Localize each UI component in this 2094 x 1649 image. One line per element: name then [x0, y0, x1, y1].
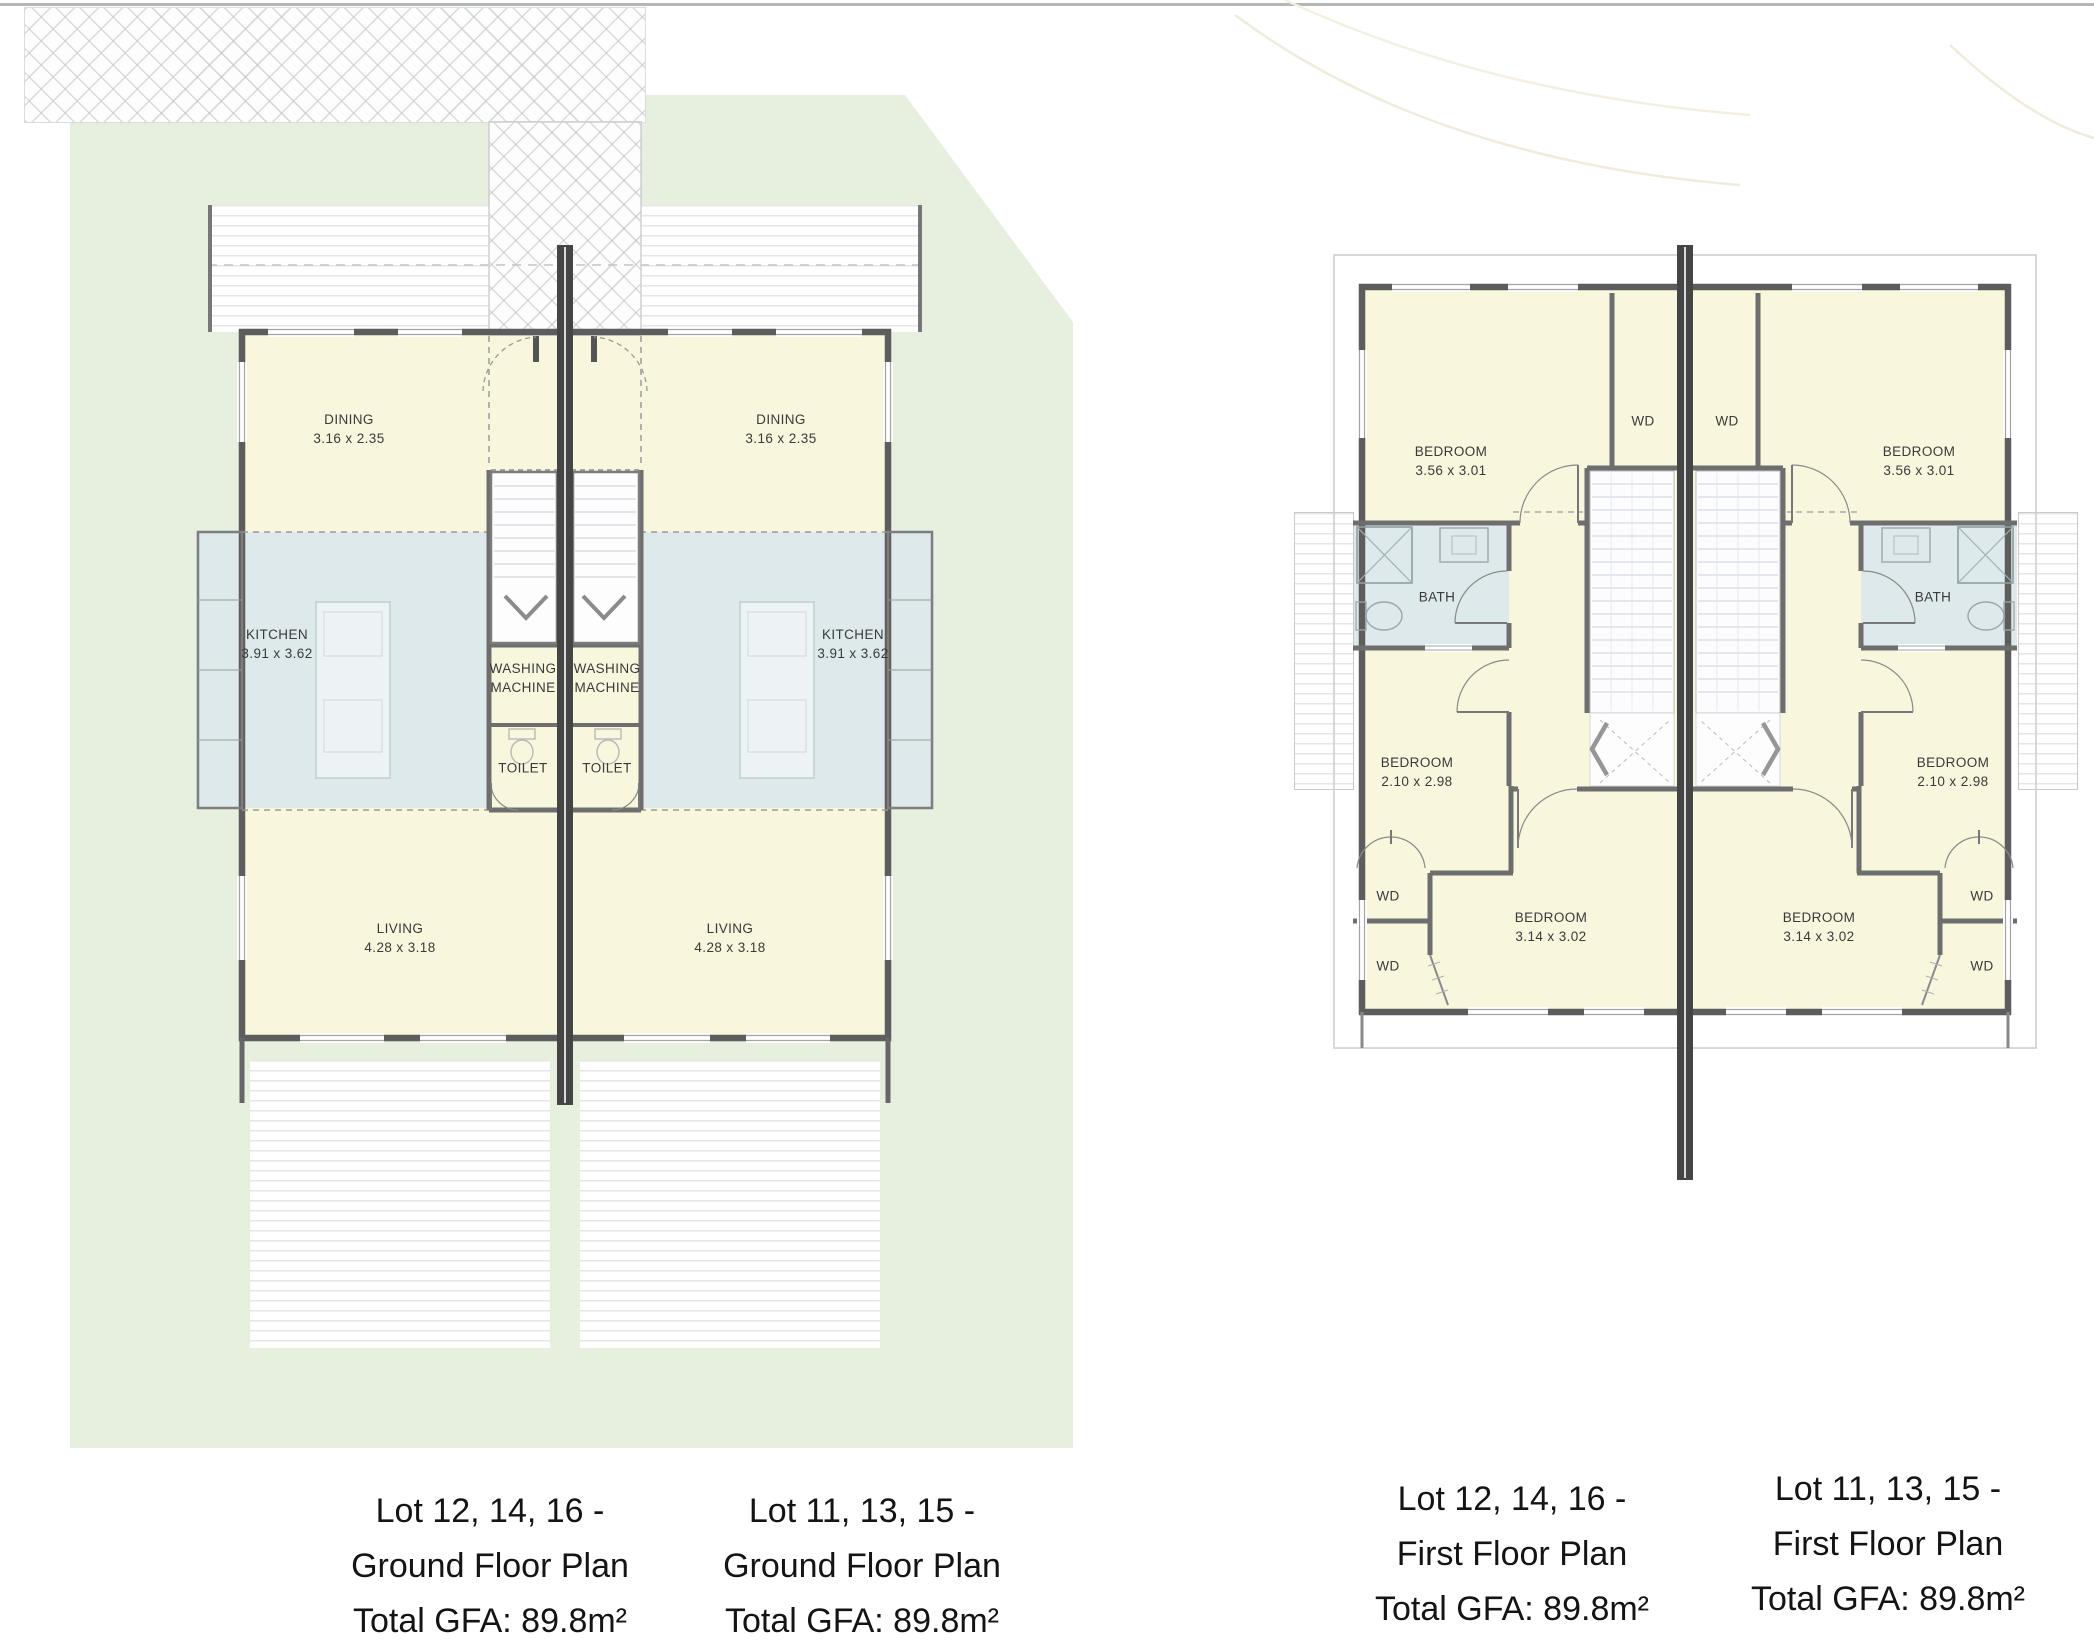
ff-left-bedroom-mid-label: BEDROOM 2.10 x 2.98: [1381, 753, 1454, 791]
gf-right-washing-label: WASHING MACHINE: [574, 659, 641, 697]
gf-right-living-label: LIVING 4.28 x 3.18: [694, 919, 765, 957]
ff-right-bath-label: BATH: [1915, 588, 1952, 607]
gf-right-kitchen-label: KITCHEN 3.91 x 3.62: [817, 625, 888, 663]
ff-left-caption: Lot 12, 14, 16 - First Floor Plan Total …: [1375, 1472, 1649, 1637]
ff-right-wd-top-label: WD: [1715, 412, 1738, 431]
ff-right-bedroom-bottom-label: BEDROOM 3.14 x 3.02: [1783, 908, 1856, 946]
gf-left-living-label: LIVING 4.28 x 3.18: [364, 919, 435, 957]
gf-left-caption: Lot 12, 14, 16 - Ground Floor Plan Total…: [351, 1484, 629, 1649]
floor-plan-sheet: DINING 3.16 x 2.35 KITCHEN 3.91 x 3.62 W…: [0, 0, 2094, 1649]
ff-right-bedroom-mid-label: BEDROOM 2.10 x 2.98: [1917, 753, 1990, 791]
ff-left-wd-top-label: WD: [1631, 412, 1654, 431]
ff-left-bedroom-top-label: BEDROOM 3.56 x 3.01: [1415, 442, 1488, 480]
ff-right-wd-lower-label: WD: [1970, 957, 1993, 976]
ff-left-bedroom-bottom-label: BEDROOM 3.14 x 3.02: [1515, 908, 1588, 946]
gf-left-kitchen-label: KITCHEN 3.91 x 3.62: [241, 625, 312, 663]
ff-left-bath-label: BATH: [1419, 588, 1456, 607]
ff-left-wd-upper-label: WD: [1376, 887, 1399, 906]
ff-right-bedroom-top-label: BEDROOM 3.56 x 3.01: [1883, 442, 1956, 480]
ff-right-caption: Lot 11, 13, 15 - First Floor Plan Total …: [1751, 1462, 2025, 1627]
gf-left-washing-label: WASHING MACHINE: [490, 659, 557, 697]
gf-right-toilet-label: TOILET: [582, 759, 631, 778]
ff-left-wd-lower-label: WD: [1376, 957, 1399, 976]
gf-left-dining-label: DINING 3.16 x 2.35: [313, 410, 384, 448]
gf-right-caption: Lot 11, 13, 15 - Ground Floor Plan Total…: [723, 1484, 1001, 1649]
gf-left-toilet-label: TOILET: [498, 759, 547, 778]
gf-right-dining-label: DINING 3.16 x 2.35: [745, 410, 816, 448]
floor-plan-drawing: [0, 0, 2094, 1649]
ff-right-wd-upper-label: WD: [1970, 887, 1993, 906]
contour-lines: [1235, 0, 2094, 185]
